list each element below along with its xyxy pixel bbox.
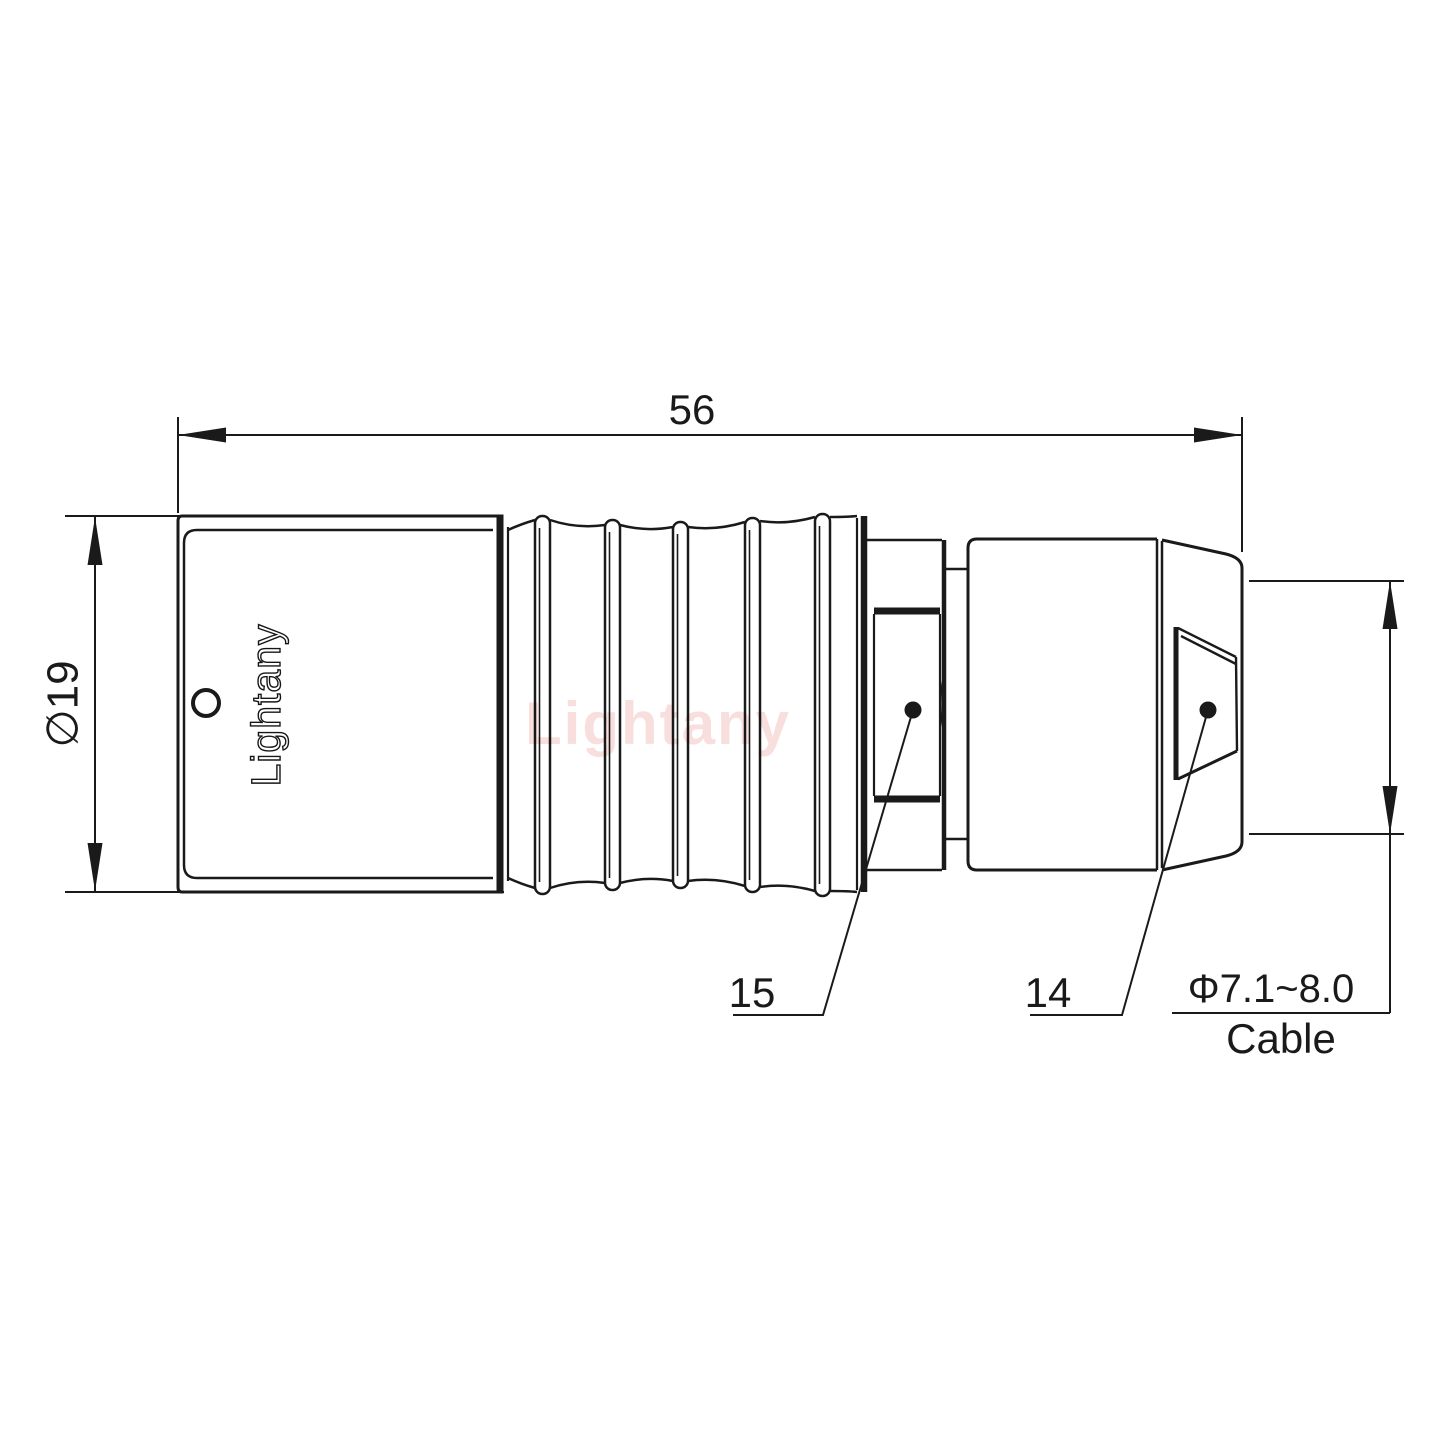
length-extension-lines	[178, 417, 1242, 552]
brand-engraving-text: Lightany	[243, 623, 289, 786]
cable-diameter-label: Φ7.1~8.0	[1188, 967, 1354, 1011]
rear-nut	[968, 539, 1162, 870]
connector-technical-drawing: Lightany 56 ∅19 Φ7.1~8.0 Cable	[0, 0, 1440, 1440]
diameter-arrow-top	[88, 517, 103, 565]
cable-caption-label: Cable	[1226, 1015, 1336, 1062]
front-shell-outer-outline	[178, 516, 497, 892]
callout-14-label: 14	[1025, 969, 1072, 1016]
length-arrow-right	[1194, 428, 1242, 443]
watermark-text: Lightany	[525, 690, 791, 757]
diameter-arrow-bottom	[88, 843, 103, 891]
cable-dimension: Φ7.1~8.0 Cable	[1172, 581, 1404, 1062]
diameter-dimension-label: ∅19	[39, 660, 88, 747]
collet-outline	[867, 540, 942, 870]
collet-section	[867, 540, 944, 870]
callout-15-dot	[905, 702, 922, 719]
neck-groove	[946, 569, 968, 839]
cable-arrow-top	[1383, 581, 1398, 629]
nut-outline	[968, 539, 1157, 870]
front-shell	[178, 515, 508, 894]
cone-window-bottom-edge	[1178, 751, 1237, 779]
cone-window-right-edge	[1236, 657, 1237, 751]
rib	[815, 514, 830, 896]
cable-extension-lines	[1249, 581, 1404, 834]
callout-15-label: 15	[729, 969, 776, 1016]
length-dimension-label: 56	[669, 386, 716, 433]
length-arrow-left	[178, 428, 226, 443]
cable-arrow-bottom	[1383, 786, 1398, 834]
front-shell-inner-face	[184, 530, 493, 878]
shell-pin-hole	[193, 690, 219, 716]
cone-window-top-edges	[1178, 628, 1236, 664]
nut-right-edges	[1157, 539, 1162, 870]
technical-drawing-page: Lightany 56 ∅19 Φ7.1~8.0 Cable	[0, 0, 1440, 1440]
callout-14-dot	[1200, 702, 1217, 719]
